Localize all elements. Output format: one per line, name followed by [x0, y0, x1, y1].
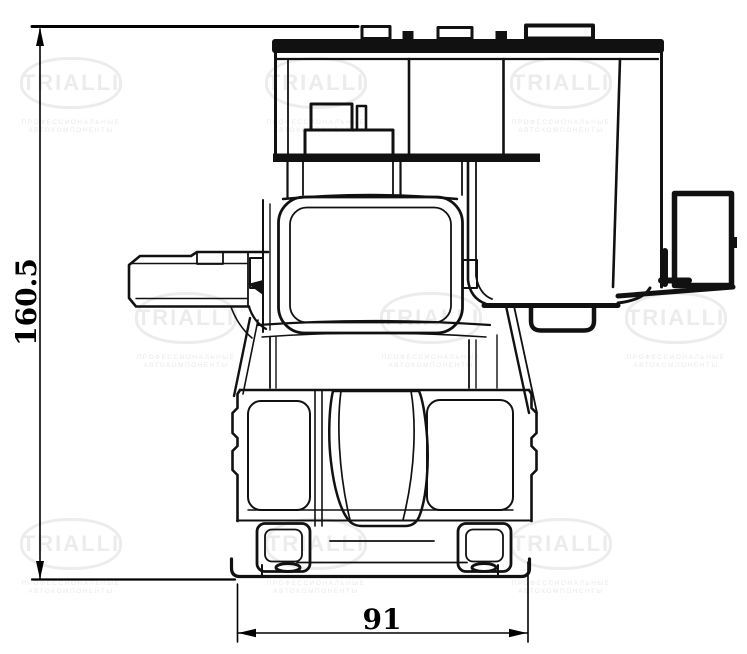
motor-section — [468, 162, 733, 331]
drawing-canvas: TRIALLIПРОФЕССИОНАЛЬНЫЕАВТОКОМПОНЕНТЫTRI… — [0, 0, 747, 654]
caliper-body — [233, 390, 537, 526]
bottom-section — [232, 521, 531, 577]
connector — [661, 194, 737, 286]
bridge-section — [234, 306, 537, 413]
mounting-arm — [129, 252, 268, 338]
height-dimension-label: 160.5 — [10, 258, 43, 346]
caliper-drawing: 160.5 91 — [0, 0, 747, 654]
cylinder-boot — [248, 162, 477, 333]
width-dimension-label: 91 — [363, 603, 402, 636]
